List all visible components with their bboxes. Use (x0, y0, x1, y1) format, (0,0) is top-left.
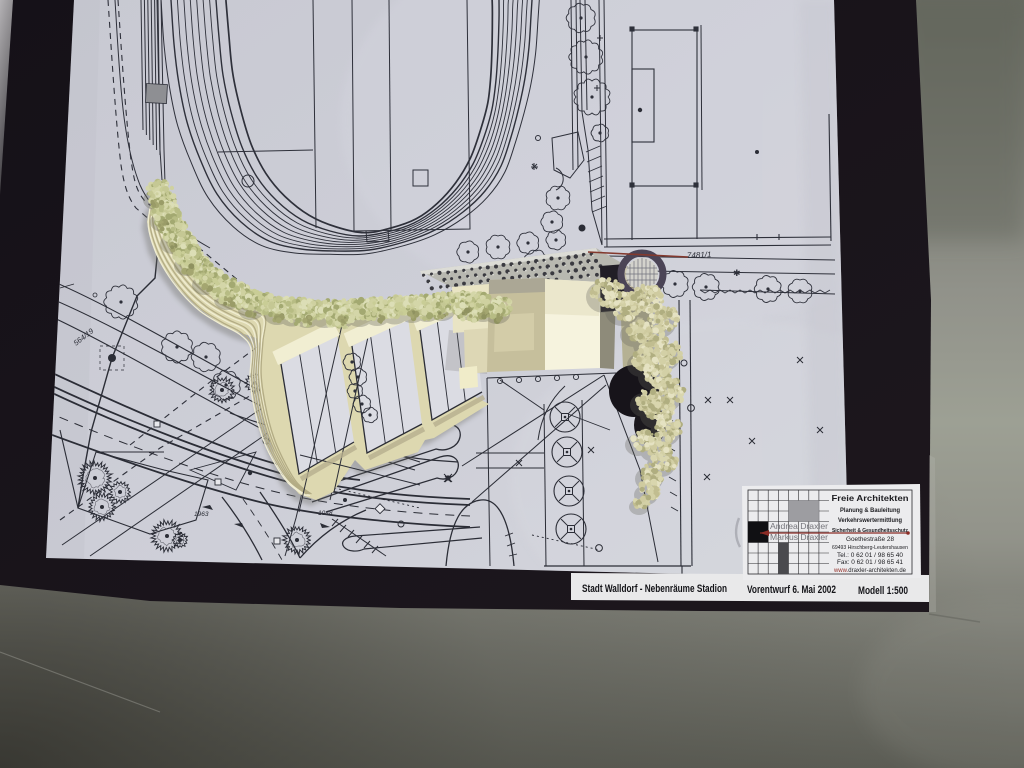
svg-text:Vorentwurf 6. Mai 2002: Vorentwurf 6. Mai 2002 (747, 584, 836, 596)
svg-text:1963: 1963 (194, 511, 209, 518)
svg-text:7481/1: 7481/1 (687, 250, 712, 260)
svg-text:69493 Hirschberg-Leutershausen: 69493 Hirschberg-Leutershausen (832, 545, 908, 551)
svg-text:Goethestraße 28: Goethestraße 28 (846, 537, 895, 543)
svg-text:Andrea Draxler: Andrea Draxler (770, 521, 828, 531)
svg-text:Fax: 0 62 01 / 98 65 41: Fax: 0 62 01 / 98 65 41 (837, 560, 904, 566)
svg-text:✱: ✱ (733, 268, 741, 278)
svg-text:Verkehrswertermittlung: Verkehrswertermittlung (838, 517, 902, 524)
svg-text:www.draxler-architekten.de: www.draxler-architekten.de (833, 568, 907, 574)
svg-text:Sicherheit & Gesundheitsschutz: Sicherheit & Gesundheitsschutz (832, 528, 908, 534)
svg-text:Freie Architekten: Freie Architekten (832, 493, 909, 503)
svg-text:Tel.: 0 62 01 / 98 65 40: Tel.: 0 62 01 / 98 65 40 (837, 553, 904, 559)
svg-text:1048: 1048 (318, 510, 333, 517)
svg-text:Modell 1:500: Modell 1:500 (858, 585, 908, 597)
svg-text:Planung & Bauleitung: Planung & Bauleitung (840, 507, 900, 514)
svg-text:Stadt Walldorf - Nebenräume St: Stadt Walldorf - Nebenräume Stadion (582, 583, 727, 595)
